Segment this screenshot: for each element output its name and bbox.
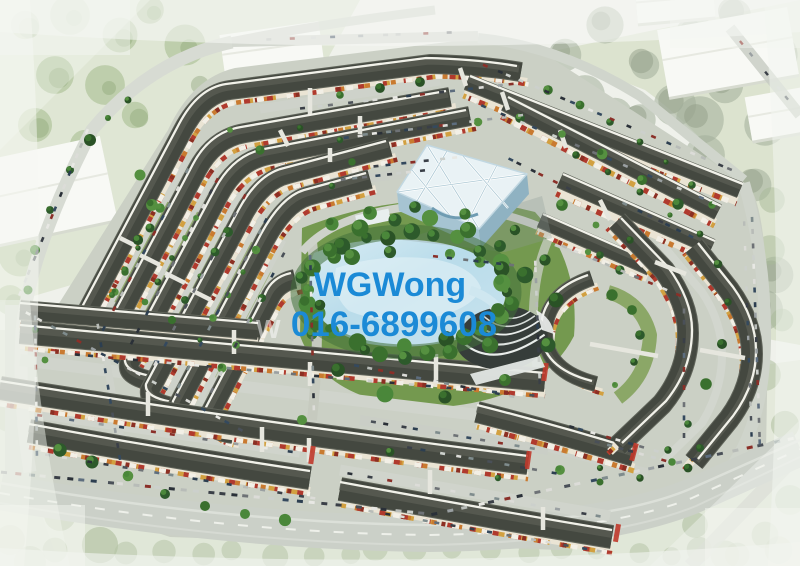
svg-text:016-6899608: 016-6899608 [291,305,497,344]
svg-text:W: W [256,314,281,344]
svg-text:WGWong: WGWong [314,266,466,304]
